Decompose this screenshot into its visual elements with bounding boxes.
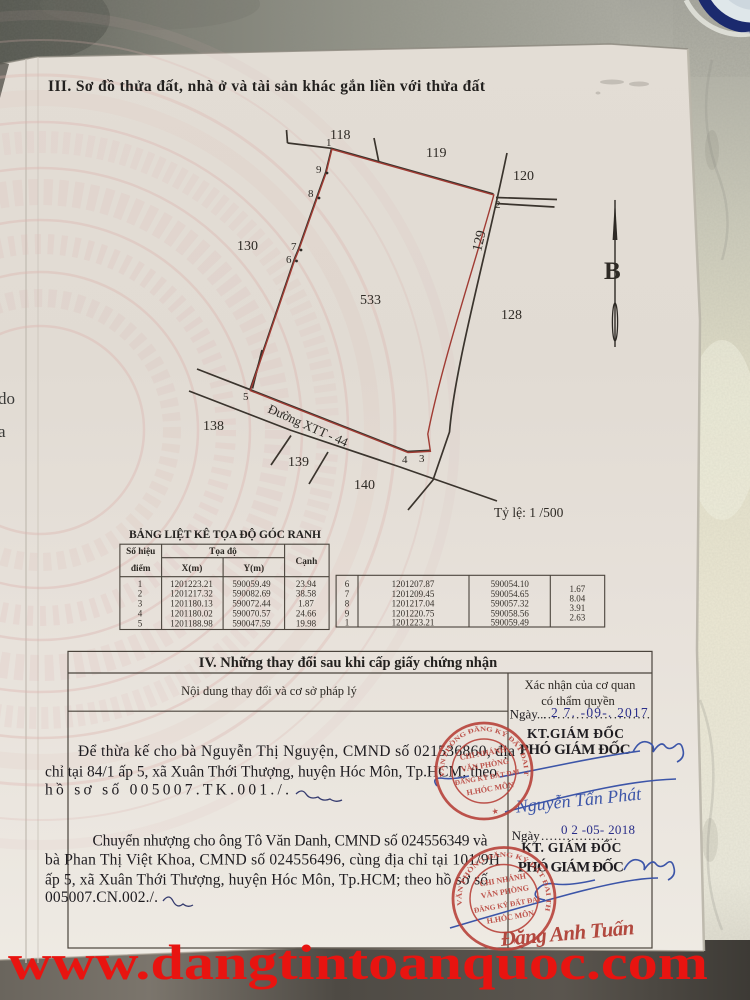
svg-text:533: 533 bbox=[360, 293, 381, 308]
svg-text:Tọa độ: Tọa độ bbox=[209, 547, 237, 557]
svg-text:ấp 5, xã Xuân Thới Thượng, huy: ấp 5, xã Xuân Thới Thượng, huyện Hóc Môn… bbox=[45, 872, 488, 889]
svg-text:23.94: 23.94 bbox=[296, 579, 317, 589]
svg-text:1201217.04: 1201217.04 bbox=[392, 599, 435, 609]
svg-text:bà Phan Thị Việt Khoa, CMND số: bà Phan Thị Việt Khoa, CMND số 024556496… bbox=[45, 852, 500, 869]
svg-text:005007.CN.002./.: 005007.CN.002./. bbox=[45, 889, 158, 906]
svg-text:590059.49: 590059.49 bbox=[491, 618, 530, 628]
svg-text:590082.69: 590082.69 bbox=[232, 589, 271, 599]
svg-text:IV. Những thay đổi sau khi cấp: IV. Những thay đổi sau khi cấp giấy chứn… bbox=[199, 655, 497, 671]
svg-text:9: 9 bbox=[316, 164, 322, 176]
svg-text:3: 3 bbox=[419, 453, 425, 465]
svg-text:1201180.02: 1201180.02 bbox=[170, 609, 212, 619]
svg-text:1.87: 1.87 bbox=[298, 599, 314, 609]
svg-text:Y(m): Y(m) bbox=[243, 563, 264, 574]
svg-text:1201209.45: 1201209.45 bbox=[392, 589, 435, 599]
svg-text:4: 4 bbox=[402, 454, 408, 466]
svg-text:3.91: 3.91 bbox=[570, 603, 586, 613]
svg-text:1201207.87: 1201207.87 bbox=[392, 579, 435, 589]
svg-text:1.67: 1.67 bbox=[570, 584, 586, 594]
svg-text:B: B bbox=[604, 258, 621, 285]
svg-text:2 7. -09-. 2017: 2 7. -09-. 2017 bbox=[551, 705, 649, 720]
svg-text:140: 140 bbox=[354, 478, 375, 493]
svg-text:130: 130 bbox=[237, 239, 258, 254]
svg-text:1201223.21: 1201223.21 bbox=[392, 618, 435, 628]
svg-text:6: 6 bbox=[345, 579, 350, 589]
svg-text:590070.57: 590070.57 bbox=[232, 609, 271, 619]
svg-text:7: 7 bbox=[345, 589, 350, 599]
svg-text:Cạnh: Cạnh bbox=[296, 557, 319, 567]
svg-text:X(m): X(m) bbox=[182, 563, 203, 574]
svg-text:Nội dung thay đổi và cơ sở phá: Nội dung thay đổi và cơ sở pháp lý bbox=[181, 684, 357, 698]
svg-text:1: 1 bbox=[138, 579, 143, 589]
svg-text:119: 119 bbox=[426, 146, 446, 161]
svg-text:1201223.21: 1201223.21 bbox=[170, 579, 213, 589]
svg-text:Xác nhận của cơ quan: Xác nhận của cơ quan bbox=[525, 678, 636, 692]
svg-text:điểm: điểm bbox=[131, 563, 151, 574]
svg-text:19.98: 19.98 bbox=[296, 618, 317, 628]
svg-text:Ngày...: Ngày... bbox=[510, 707, 547, 722]
svg-text:BẢNG LIỆT KÊ TỌA ĐỘ GÓC RANH: BẢNG LIỆT KÊ TỌA ĐỘ GÓC RANH bbox=[129, 527, 321, 541]
svg-text:6: 6 bbox=[286, 254, 292, 266]
svg-text:chỉ tại 84/1 ấp 5, xã Xuân Thớ: chỉ tại 84/1 ấp 5, xã Xuân Thới Thượng, … bbox=[45, 764, 497, 781]
svg-text:do: do bbox=[0, 389, 15, 408]
svg-text:590047.59: 590047.59 bbox=[232, 618, 271, 628]
svg-text:KT. GIÁM ĐỐC: KT. GIÁM ĐỐC bbox=[521, 840, 621, 855]
svg-text:1201188.98: 1201188.98 bbox=[170, 618, 213, 628]
svg-text:Số hiệu: Số hiệu bbox=[126, 546, 155, 557]
svg-text:a: a bbox=[0, 422, 6, 441]
svg-text:24.66: 24.66 bbox=[296, 609, 317, 619]
svg-text:590057.32: 590057.32 bbox=[491, 599, 529, 609]
svg-text:7: 7 bbox=[291, 241, 297, 253]
svg-text:5: 5 bbox=[243, 391, 249, 403]
svg-text:590054.65: 590054.65 bbox=[491, 589, 530, 599]
svg-text:590059.49: 590059.49 bbox=[232, 579, 271, 589]
svg-text:2.63: 2.63 bbox=[570, 613, 586, 623]
svg-text:3: 3 bbox=[138, 599, 143, 609]
svg-text:118: 118 bbox=[330, 128, 350, 143]
svg-text:Chuyển nhượng cho ông Tô Văn D: Chuyển nhượng cho ông Tô Văn Danh, CMND … bbox=[93, 833, 488, 850]
svg-text:2: 2 bbox=[495, 199, 501, 211]
svg-text:2: 2 bbox=[138, 589, 143, 599]
svg-text:8.04: 8.04 bbox=[570, 594, 586, 604]
svg-text:www.dangtintoanquoc.com: www.dangtintoanquoc.com bbox=[8, 934, 708, 990]
svg-text:8: 8 bbox=[345, 599, 350, 609]
svg-text:120: 120 bbox=[513, 169, 534, 184]
svg-text:590054.10: 590054.10 bbox=[491, 579, 530, 589]
svg-text:5: 5 bbox=[138, 618, 143, 628]
svg-text:139: 139 bbox=[288, 455, 309, 470]
svg-text:0 2 -05- 2018: 0 2 -05- 2018 bbox=[561, 822, 635, 837]
svg-text:KT.GIÁM ĐỐC: KT.GIÁM ĐỐC bbox=[527, 726, 624, 741]
svg-text:590072.44: 590072.44 bbox=[232, 599, 271, 609]
svg-text:138: 138 bbox=[203, 419, 224, 434]
svg-text:128: 128 bbox=[501, 308, 522, 323]
svg-text:8: 8 bbox=[308, 188, 314, 200]
svg-text:38.58: 38.58 bbox=[296, 589, 317, 599]
svg-text:1: 1 bbox=[345, 618, 350, 628]
svg-text:1201217.32: 1201217.32 bbox=[170, 589, 213, 599]
svg-text:4: 4 bbox=[138, 609, 143, 619]
svg-text:1201180.13: 1201180.13 bbox=[170, 599, 213, 609]
svg-text:III. Sơ đồ thửa đất, nhà ở và: III. Sơ đồ thửa đất, nhà ở và tài sản kh… bbox=[48, 78, 486, 95]
svg-text:Tỷ lệ: 1 /500: Tỷ lệ: 1 /500 bbox=[494, 505, 564, 520]
